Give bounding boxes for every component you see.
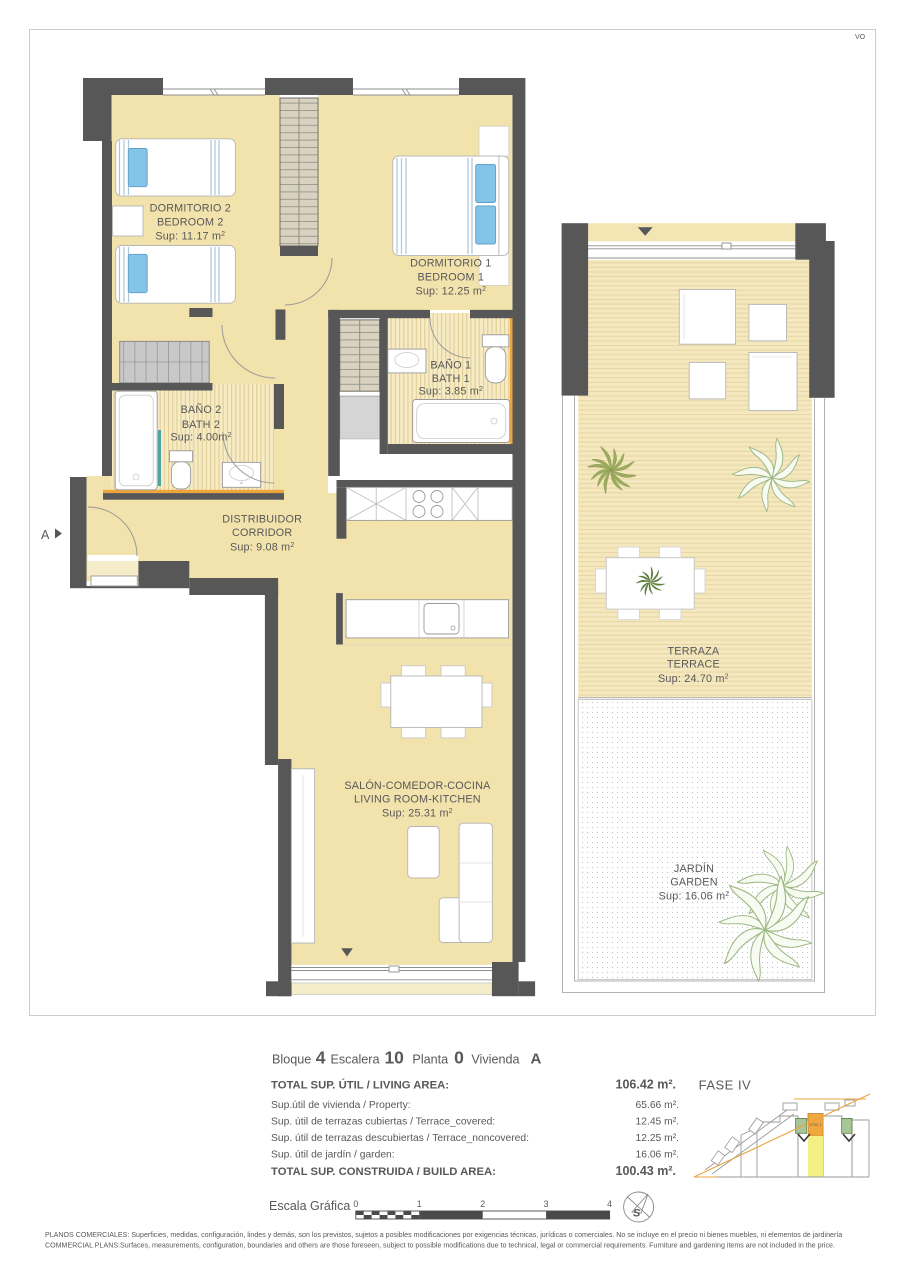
svg-text:0: 0	[353, 1199, 358, 1209]
svg-text:FASE IV: FASE IV	[699, 1078, 752, 1093]
svg-text:100.43 m².: 100.43 m².	[616, 1164, 676, 1178]
svg-text:Sup. útil de terrazas cubierta: Sup. útil de terrazas cubiertas / Terrac…	[271, 1116, 495, 1127]
svg-text:COMMERCIAL PLANS:Surfaces, mea: COMMERCIAL PLANS:Surfaces, measurements,…	[45, 1242, 835, 1250]
svg-text:GARDEN: GARDEN	[670, 877, 717, 889]
svg-text:BAÑO 1: BAÑO 1	[430, 359, 471, 372]
svg-text:PLANOS COMERCIALES: Superficie: PLANOS COMERCIALES: Superficies, medidas…	[45, 1231, 842, 1239]
svg-text:BATH 1: BATH 1	[432, 373, 470, 385]
svg-text:A: A	[41, 528, 50, 542]
svg-text:2: 2	[480, 1199, 485, 1209]
svg-text:TOTAL SUP. ÚTIL / LIVING AREA:: TOTAL SUP. ÚTIL / LIVING AREA:	[271, 1079, 449, 1092]
svg-text:65.66 m².: 65.66 m².	[636, 1100, 680, 1111]
svg-text:3: 3	[544, 1199, 549, 1209]
svg-text:Sup: 12.25 m2: Sup: 12.25 m2	[415, 286, 486, 298]
svg-text:TOTAL SUP. CONSTRUIDA / BUILD: TOTAL SUP. CONSTRUIDA / BUILD AREA:	[271, 1166, 496, 1178]
svg-text:LIVING ROOM-KITCHEN: LIVING ROOM-KITCHEN	[354, 793, 481, 805]
svg-text:Sup: 24.70 m2: Sup: 24.70 m2	[658, 673, 729, 685]
svg-text:BEDROOM 1: BEDROOM 1	[418, 272, 485, 284]
svg-text:12.45 m².: 12.45 m².	[636, 1116, 680, 1127]
svg-text:Escala Gráfica: Escala Gráfica	[269, 1199, 350, 1213]
svg-text:VT02 1: VT02 1	[809, 1123, 821, 1127]
svg-text:BEDROOM 2: BEDROOM 2	[157, 217, 224, 229]
svg-text:S: S	[633, 1208, 641, 1220]
svg-text:16.06 m².: 16.06 m².	[636, 1149, 680, 1160]
svg-text:TERRAZA: TERRAZA	[668, 645, 720, 657]
svg-text:Sup: 25.31 m2: Sup: 25.31 m2	[382, 807, 453, 819]
svg-text:Sup: 3.85 m2: Sup: 3.85 m2	[419, 386, 484, 398]
svg-text:VO: VO	[855, 34, 866, 41]
svg-text:BATH 2: BATH 2	[182, 419, 220, 431]
svg-text:JARDÍN: JARDÍN	[674, 862, 714, 875]
svg-text:TERRACE: TERRACE	[667, 659, 720, 671]
svg-text:1: 1	[417, 1199, 422, 1209]
svg-text:Sup: 16.06 m2: Sup: 16.06 m2	[659, 891, 730, 903]
svg-text:DISTRIBUIDOR: DISTRIBUIDOR	[222, 514, 302, 526]
svg-text:12.25 m².: 12.25 m².	[636, 1133, 680, 1144]
svg-text:4: 4	[607, 1199, 612, 1209]
svg-text:BAÑO 2: BAÑO 2	[181, 403, 222, 416]
svg-text:Sup. útil de terrazas descubie: Sup. útil de terrazas descubiertas / Ter…	[271, 1133, 529, 1144]
svg-text:Sup: 11.17 m2: Sup: 11.17 m2	[155, 231, 225, 243]
svg-text:SALÓN-COMEDOR-COCINA: SALÓN-COMEDOR-COCINA	[344, 779, 491, 792]
svg-text:CORRIDOR: CORRIDOR	[232, 527, 292, 539]
svg-text:Sup.útil de vivienda / Propert: Sup.útil de vivienda / Property:	[271, 1100, 411, 1111]
svg-text:Sup: 4.00m2: Sup: 4.00m2	[170, 431, 231, 443]
svg-text:106.42 m².: 106.42 m².	[616, 1078, 676, 1092]
svg-text:DORMITORIO 2: DORMITORIO 2	[150, 203, 231, 215]
svg-text:DORMITORIO 1: DORMITORIO 1	[410, 258, 491, 270]
svg-text:Sup: 9.08 m2: Sup: 9.08 m2	[230, 542, 295, 554]
svg-text:Sup. útil de jardín / garden:: Sup. útil de jardín / garden:	[271, 1149, 395, 1160]
